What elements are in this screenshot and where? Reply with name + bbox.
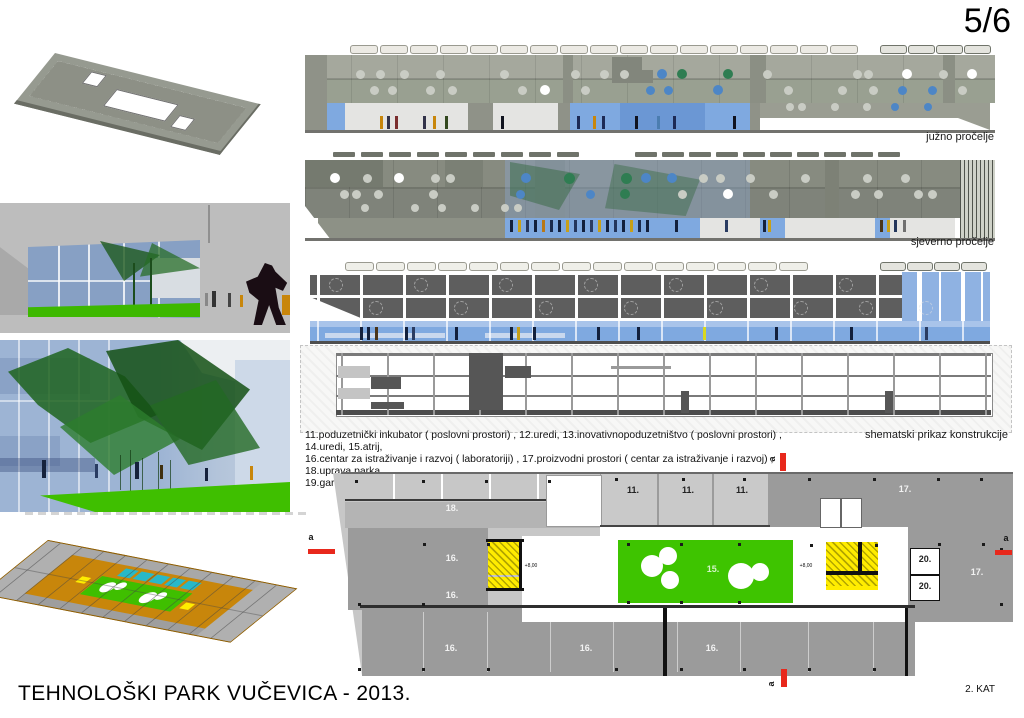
ground-line xyxy=(305,238,995,241)
person-figure xyxy=(240,295,243,307)
large-person-silhouette xyxy=(246,263,288,325)
person-figure xyxy=(135,462,139,479)
person-figure xyxy=(228,293,231,307)
person-figure xyxy=(250,466,253,480)
tree-trunk xyxy=(120,455,121,490)
orange-furniture xyxy=(282,295,290,315)
perforated-slab-3d-view xyxy=(10,28,290,198)
project-title: TEHNOLOŠKI PARK VUČEVICA - 2013. xyxy=(18,682,411,706)
tree-trunk xyxy=(142,458,143,494)
structure-columns xyxy=(301,346,1011,432)
schematic-structure-drawing xyxy=(300,345,1012,433)
ramp-wedge xyxy=(958,118,990,130)
crowd-strip xyxy=(0,458,95,472)
plan-left-wing xyxy=(333,473,600,676)
tree-trunk xyxy=(130,450,131,492)
presentation-board: 5/6 xyxy=(0,0,1024,718)
end-pier xyxy=(305,55,327,130)
north-elevation-label: sjeverno pročelje xyxy=(911,236,994,248)
person-figure xyxy=(205,468,208,481)
facade-extension xyxy=(760,103,990,118)
section-structure xyxy=(305,255,995,347)
person-figure xyxy=(205,293,208,306)
floor-label: 2. KAT xyxy=(965,684,995,695)
page-number: 5/6 xyxy=(964,2,1011,41)
axon-slab xyxy=(0,540,297,643)
person-figure xyxy=(160,465,163,479)
south-elevation-label: južno pročelje xyxy=(926,131,994,143)
legend-line: 11.poduzetnički inkubator ( poslovni pro… xyxy=(305,430,795,454)
slab-plate xyxy=(14,53,261,155)
structure-cores xyxy=(301,346,1011,432)
axon-end-block xyxy=(0,541,81,600)
section-skylights xyxy=(305,255,995,347)
section-skylights xyxy=(305,255,995,347)
dashed-window-outlines xyxy=(305,255,995,347)
interior-rendering-atrium-view xyxy=(0,203,290,333)
ground-line xyxy=(305,130,995,133)
building-section-drawing xyxy=(305,255,995,347)
concrete-facade-band xyxy=(305,55,995,103)
person-figure xyxy=(95,464,98,478)
people-figures xyxy=(305,255,995,347)
structure-line xyxy=(208,205,210,243)
louver-end-wall xyxy=(960,160,995,241)
ground-columns xyxy=(305,255,995,347)
structure-frame xyxy=(301,346,1011,432)
axonometric-floor-model xyxy=(10,512,305,667)
person-figure xyxy=(212,291,216,307)
atrium-glazing-overlay xyxy=(505,160,750,218)
interior-rendering-canopy-view xyxy=(0,340,290,512)
north-elevation-drawing xyxy=(305,150,995,245)
person-figure xyxy=(42,460,46,478)
section-columns xyxy=(305,255,995,347)
schematic-label: shematski prikaz konstrukcije xyxy=(865,429,1008,441)
south-elevation-drawing xyxy=(305,40,995,135)
